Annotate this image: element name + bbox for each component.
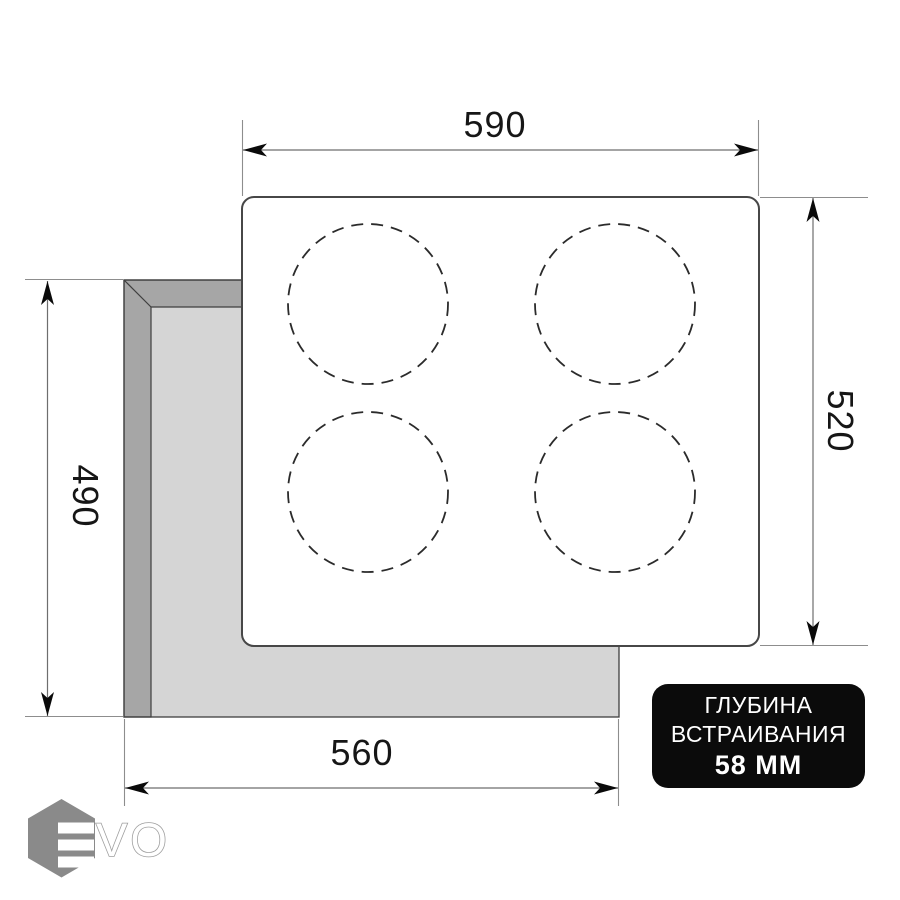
- depth-badge-value: 58 ММ: [715, 750, 803, 780]
- depth-badge-line1: ГЛУБИНА: [705, 692, 813, 719]
- depth-badge-line2: ВСТРАИВАНИЯ: [671, 721, 846, 748]
- dimension-bottom-label: 560: [307, 732, 417, 774]
- hob-panel: [242, 197, 759, 646]
- logo-wordmark: VO: [96, 813, 170, 866]
- dimension-top-label: 590: [440, 104, 550, 146]
- installation-diagram: VO 590 520 490 560 ГЛУБИНА ВСТРАИВАНИЯ 5…: [0, 0, 900, 900]
- logo-e-bar-top: [58, 823, 94, 834]
- dimension-left-label: 490: [64, 441, 106, 551]
- dimension-right-label: 520: [819, 366, 861, 476]
- logo-e-bar-bottom: [58, 857, 94, 868]
- depth-badge: ГЛУБИНА ВСТРАИВАНИЯ 58 ММ: [652, 684, 865, 788]
- evo-logo: VO: [28, 799, 170, 878]
- logo-e-bar-middle: [58, 840, 94, 851]
